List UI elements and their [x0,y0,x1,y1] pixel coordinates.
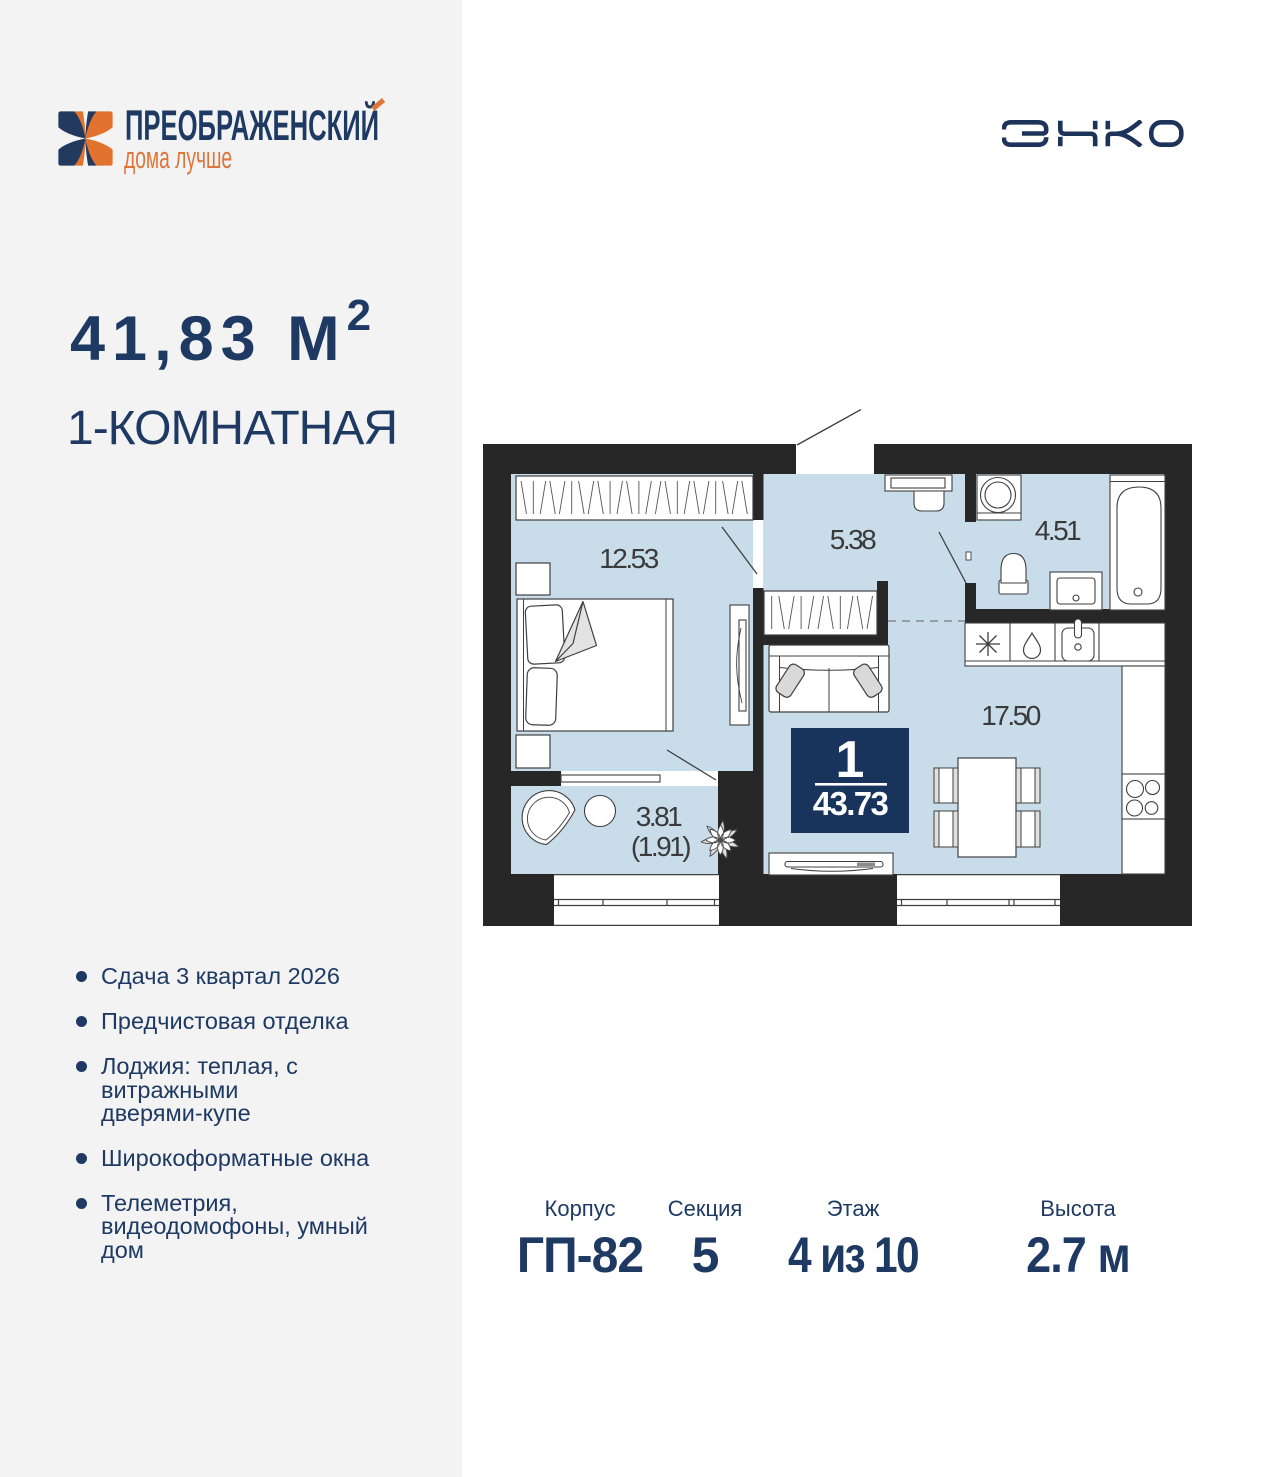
svg-text:(1.91): (1.91) [631,831,690,862]
svg-text:5.38: 5.38 [830,524,876,555]
svg-text:43.73: 43.73 [813,785,889,822]
svg-text:17.50: 17.50 [981,700,1040,731]
svg-text:12.53: 12.53 [599,543,658,574]
svg-text:4.51: 4.51 [1035,515,1081,546]
svg-text:1: 1 [836,731,865,789]
svg-text:3.81: 3.81 [636,801,682,832]
